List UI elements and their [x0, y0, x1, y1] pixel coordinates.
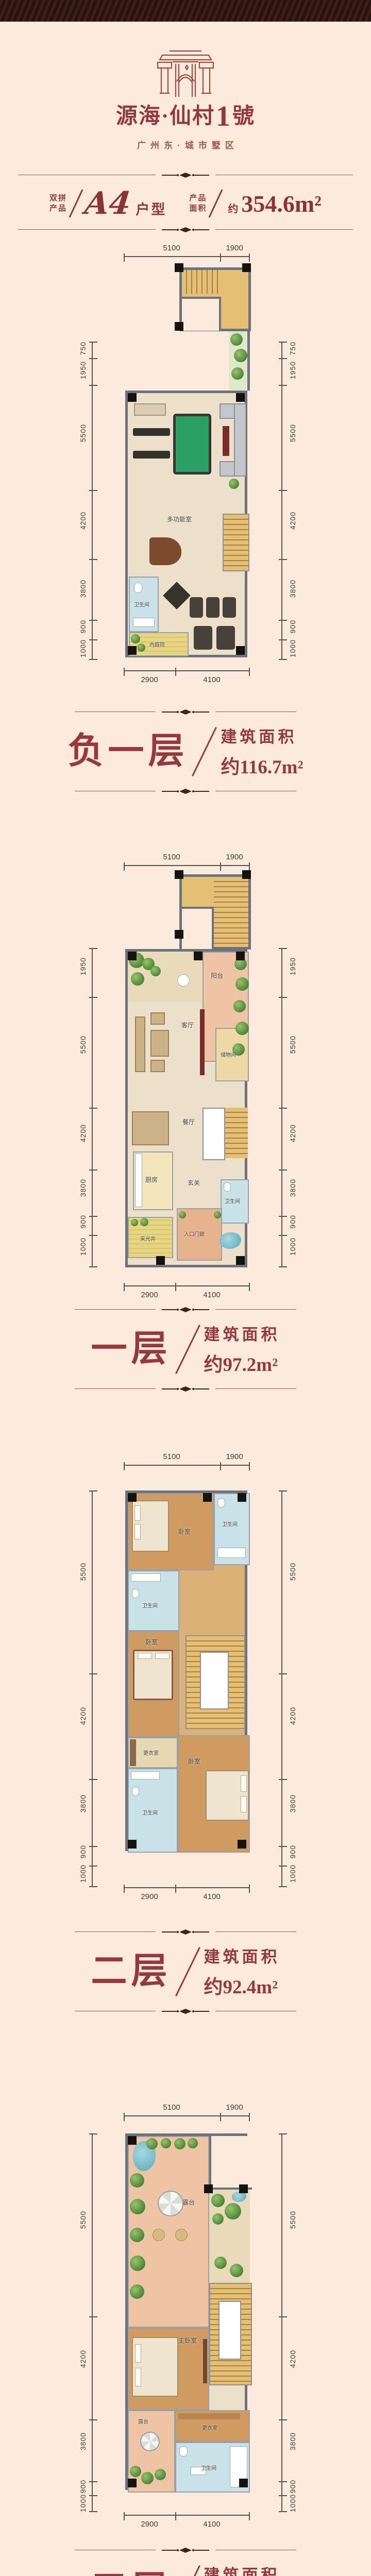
tv-wall [200, 1009, 205, 1075]
unit-model: A4 [83, 188, 132, 219]
staircase [223, 514, 249, 571]
dim-label: 2900 [141, 2520, 158, 2529]
project-subtitle: 广州东·城市墅区 [0, 138, 371, 151]
dim-label: 3800 [289, 580, 297, 598]
room-bedroom: 卧室 [128, 1631, 179, 1737]
dim-label: 5500 [79, 2211, 87, 2229]
first-floor-body: 阳台 客厅 储物间 餐厅 [125, 949, 247, 1267]
plant-icon [230, 333, 243, 346]
floor-caption-basement: 负一层 建筑面积 约116.7m² [0, 724, 371, 779]
dim-label: 4200 [79, 2350, 87, 2368]
room-label: 卫生间 [142, 1808, 158, 1816]
divider [75, 1385, 296, 1393]
dim-label: 1950 [289, 957, 297, 975]
plant-icon [130, 2466, 141, 2477]
plant-icon [150, 966, 161, 976]
bathtub [131, 1573, 161, 1582]
dim-label: 1000 [79, 1865, 87, 1883]
kitchen-counter [135, 1154, 142, 1207]
dim-label: 5500 [289, 1563, 297, 1581]
room-label: 卧室 [188, 1757, 200, 1766]
room-roof-terrace: 露台 [128, 2136, 209, 2328]
room-label: 卫生间 [222, 1520, 238, 1528]
dim-rail-left: 5500 4200 3800 900 1000 [92, 1490, 93, 1887]
dim-rail-top: 5100 1900 [124, 865, 250, 866]
dim-rail-bottom: 2900 4100 [124, 1285, 250, 1286]
divider [18, 226, 353, 233]
plant-icon [130, 2228, 144, 2242]
room-dressing: 更衣室 [128, 1737, 178, 1768]
theater-seat [216, 626, 235, 650]
plant-icon [233, 1000, 246, 1012]
clothes-rack [134, 403, 166, 416]
front-garden [128, 952, 203, 1002]
dim-label: 750 [79, 342, 87, 355]
dim-label: 5100 [163, 1452, 180, 1461]
sofa [234, 403, 246, 477]
dim-label: 4200 [79, 1707, 87, 1725]
room-bathroom: 卫生间 [128, 1570, 179, 1631]
sofa [220, 461, 235, 477]
dim-rail-right: 750 1950 5500 4200 3800 900 1000 [281, 342, 282, 660]
room-label: 露台 [138, 2417, 148, 2425]
slash-divider [69, 189, 83, 218]
plant-icon [131, 634, 140, 643]
dim-rail-right: 5500 4200 3800 900 1000 [281, 2133, 282, 2512]
floor-name: 三层 [91, 2572, 172, 2576]
title-number: 1 [215, 100, 232, 132]
dim-label: 1900 [226, 1452, 243, 1461]
closet [178, 2413, 240, 2419]
room-label: 阳台 [211, 971, 223, 980]
garden-strip [229, 331, 249, 390]
dim-label: 1900 [226, 2103, 243, 2112]
plant-icon [141, 2472, 154, 2484]
armchair [150, 1060, 165, 1072]
plant-icon [214, 2257, 227, 2269]
divider-ornament-icon [156, 788, 215, 794]
bed [132, 1500, 169, 1552]
divider-ornament-icon [156, 709, 215, 715]
plant-icon [229, 479, 239, 489]
dim-rail-bottom: 2900 4100 [124, 670, 250, 671]
dim-label: 5500 [79, 1563, 87, 1581]
side-garden [209, 2190, 250, 2283]
floor-area-caption: 建筑面积 [204, 1944, 280, 1967]
dim-label: 900 [289, 620, 297, 633]
dim-label: 3800 [79, 580, 87, 598]
room-bathroom: 卫生间 [221, 1179, 249, 1224]
floor-name: 一层 [91, 1331, 172, 1367]
dim-label: 1950 [79, 957, 87, 975]
divider-ornament-icon [156, 1929, 215, 1935]
sofa [220, 403, 235, 419]
room-courtyard: 内庭院 [129, 632, 189, 656]
dim-label: 5500 [289, 2211, 297, 2229]
unit-model-suffix: 户型 [136, 198, 166, 218]
toilet [217, 1498, 225, 1507]
dim-rail-right: 5500 4200 3800 900 1000 [281, 1490, 282, 1887]
plant-icon [161, 2138, 171, 2148]
divider [75, 708, 296, 716]
floorplan-basement: 5100 1900 多功能室 [0, 246, 371, 699]
plant-icon [130, 2284, 144, 2299]
staircase [182, 270, 221, 294]
room-bathroom: 卫生间 [214, 1493, 250, 1565]
floor-area-caption: 建筑面积 [204, 1321, 280, 1345]
pool-table [173, 414, 211, 474]
floorplan-second-floor: 5100 1900 卧室 卫生间 卫生间 卧室 更衣 [0, 1439, 371, 1913]
plant-icon [131, 972, 144, 986]
dim-label: 900 [289, 2480, 297, 2493]
dim-label: 3800 [79, 2432, 87, 2450]
floor-area-value: 约92.4m² [204, 1971, 280, 1999]
header: 源海·仙村1號 广州东·城市墅区 [0, 0, 371, 151]
patio-chair [175, 2229, 188, 2241]
dim-rail-top: 5100 1900 [124, 256, 250, 257]
dim-label: 4200 [289, 2350, 297, 2368]
bathtub [133, 618, 155, 627]
toilet [179, 2446, 188, 2456]
room-label: 入口门廊 [184, 1230, 205, 1238]
room-label: 卧室 [145, 1637, 158, 1646]
slash-divider [175, 2565, 200, 2576]
room-label: 卫生间 [201, 2464, 216, 2471]
patio-table [177, 974, 190, 987]
product-category: 双拼 产品 [49, 193, 67, 214]
divider-ornament-icon [156, 1307, 215, 1313]
dining-table [163, 582, 191, 609]
dim-rail-left: 750 1950 5500 4200 3800 900 1000 [92, 342, 93, 660]
plant-icon [235, 1022, 249, 1035]
dim-label: 1000 [79, 1238, 87, 1256]
room-label: 多功能室 [167, 515, 192, 523]
dim-label: 5100 [163, 853, 180, 861]
stair-wing [179, 267, 251, 331]
product-info: 双拼 产品 A4 户型 产品 面积 约 354.6m² [0, 185, 371, 224]
plant-icon [174, 2138, 185, 2149]
dim-rail-bottom: 2900 4100 [124, 2515, 250, 2516]
floor-area-value: 约97.2m² [204, 1349, 280, 1377]
dim-label: 3800 [79, 1794, 87, 1812]
tv-wall [223, 426, 229, 456]
dim-label: 1000 [289, 1238, 297, 1256]
floor-name: 二层 [91, 1954, 172, 1990]
toilet [132, 1787, 139, 1796]
patio-chair [153, 2229, 165, 2241]
staircase [214, 877, 248, 947]
grand-piano [149, 537, 181, 565]
third-floor-body: 露台 [125, 2133, 247, 2490]
dim-label: 900 [79, 1845, 87, 1858]
archway-logo-icon [147, 48, 224, 100]
plant-icon [155, 2469, 166, 2480]
gym-bench [133, 428, 170, 436]
plant-icon [140, 1218, 148, 1226]
theater-seat [206, 597, 220, 618]
dim-label: 5100 [163, 2103, 180, 2112]
dim-label: 1900 [226, 244, 243, 252]
bathtub [217, 1548, 246, 1558]
plant-icon [235, 977, 249, 991]
divider-ornament-icon [156, 227, 215, 233]
dim-label: 4100 [203, 1892, 220, 1901]
dim-label: 4200 [79, 1124, 87, 1142]
floorplan-third-floor: 5100 1900 露台 [0, 2072, 371, 2535]
dim-label: 2900 [141, 1892, 158, 1901]
dim-rail-left: 1950 5500 4200 3800 900 1000 [92, 948, 93, 1267]
staircase [224, 1108, 248, 1158]
dim-rail-top: 5100 1900 [124, 1465, 250, 1466]
armchair [150, 1012, 165, 1025]
divider-ornament-icon [156, 172, 215, 178]
dim-label: 4200 [289, 512, 297, 530]
plant-icon [214, 1211, 221, 1218]
dim-rail-left: 5500 4200 3800 900 1000 [92, 2133, 93, 2512]
dim-label: 5500 [289, 1036, 297, 1054]
dim-label: 3800 [289, 2432, 297, 2450]
dim-label: 900 [79, 2480, 87, 2493]
dim-rail-top: 5100 1900 [124, 2115, 250, 2116]
water-feature [220, 1232, 241, 1249]
plant-icon [130, 2256, 145, 2271]
dim-label: 1900 [226, 853, 243, 861]
room-label: 储物间 [221, 1050, 236, 1058]
plant-icon [230, 2264, 243, 2277]
toilet [132, 1589, 139, 1598]
tv-cabinet [203, 2339, 207, 2383]
basement-body: 多功能室 卫生间 内庭院 [125, 391, 247, 657]
title-text: 源海·仙村 [116, 105, 215, 128]
total-area-value: 354.6m² [241, 192, 322, 216]
dim-label: 900 [79, 620, 87, 633]
plant-icon [231, 367, 244, 380]
divider [75, 2008, 296, 2015]
gym-bench [133, 451, 170, 459]
area-approx-prefix: 约 [228, 200, 238, 215]
room-label: 卧室 [178, 1527, 191, 1536]
room-dressing: 更衣室 [175, 2410, 250, 2442]
bathtub [131, 1771, 160, 1780]
slash-divider [175, 1946, 200, 1996]
closet [130, 1739, 136, 1766]
plant-icon [146, 2138, 158, 2149]
dim-label: 1950 [289, 361, 297, 379]
theater-seat [190, 597, 203, 618]
theater-seat [223, 597, 236, 618]
dim-rail-bottom: 2900 4100 [124, 1887, 250, 1888]
dim-label: 2900 [141, 1291, 158, 1299]
dim-label: 2900 [141, 675, 158, 684]
dim-label: 4200 [289, 1124, 297, 1142]
second-floor-body: 卧室 卫生间 卫生间 卧室 更衣室 卫生间 [125, 1490, 247, 1851]
divider [75, 1928, 296, 1936]
dim-label: 900 [79, 1215, 87, 1228]
room-kitchen: 厨房 [133, 1151, 173, 1210]
dim-label: 3800 [79, 1179, 87, 1197]
slash-divider [192, 726, 217, 776]
room-bedroom: 卧室 [128, 1493, 214, 1570]
dim-label: 3800 [289, 1179, 297, 1197]
dim-label: 4100 [203, 675, 220, 684]
area-caption: 产品 面积 [189, 193, 207, 214]
divider [18, 172, 353, 179]
room-label: 餐厅 [182, 1117, 195, 1126]
poster-page: 源海·仙村1號 广州东·城市墅区 双拼 产品 A4 户型 产品 面积 约 354… [0, 0, 371, 2576]
stair-well [200, 1652, 229, 1709]
dim-label: 1000 [289, 639, 297, 657]
top-banner [0, 0, 371, 22]
dim-label: 4200 [79, 512, 87, 530]
plant-icon [130, 2199, 145, 2214]
room-label: 更衣室 [143, 1749, 159, 1756]
dining-table [132, 1111, 169, 1145]
patio-umbrella [158, 2191, 183, 2216]
stair-wing [179, 874, 251, 950]
plant-icon [234, 349, 247, 362]
slash-divider [175, 1324, 200, 1374]
bed [206, 1770, 249, 1821]
dim-label: 1000 [289, 2494, 297, 2512]
room-label: 露台 [182, 2198, 195, 2207]
project-title: 源海·仙村1號 [0, 101, 371, 133]
floor-area-value: 约116.7m² [221, 751, 303, 779]
slash-divider [209, 189, 223, 218]
dim-label: 4100 [203, 2520, 220, 2529]
room-label: 客厅 [181, 1021, 194, 1029]
room-bedroom: 卧室 [178, 1735, 250, 1853]
room-label: 更衣室 [202, 2424, 217, 2431]
dim-label: 900 [289, 1845, 297, 1858]
bed [132, 2337, 178, 2397]
toilet [224, 1182, 231, 1192]
plant-icon [211, 2194, 225, 2207]
dim-label: 900 [289, 1215, 297, 1228]
floor-caption-first-floor: 一层 建筑面积 约97.2m² [0, 1321, 371, 1377]
title-suffix: 號 [232, 105, 255, 128]
divider-ornament-icon [156, 2547, 215, 2553]
dim-label: 1950 [79, 361, 87, 379]
room-storage: 储物间 [215, 1028, 249, 1081]
dim-label: 5500 [79, 424, 87, 442]
plant-icon [188, 2138, 198, 2148]
room-lightwell: 采光井 [128, 1217, 173, 1258]
floor-area-caption: 建筑面积 [221, 724, 303, 747]
room-label: 内庭院 [149, 640, 165, 648]
divider [75, 2547, 296, 2554]
room-label: 卫生间 [142, 1601, 158, 1609]
dim-label: 750 [289, 342, 297, 355]
divider-ornament-icon [156, 1386, 215, 1392]
dim-rail-right: 1950 5500 4200 3800 900 1000 [281, 948, 282, 1267]
divider-ornament-icon [156, 2008, 215, 2014]
dim-label: 5500 [79, 1036, 87, 1054]
floor-caption-third-floor: 三层 建筑面积 约48.4m² [0, 2562, 371, 2576]
coffee-table [150, 1030, 169, 1057]
tree-icon [225, 2203, 241, 2219]
room-label: 卫生间 [134, 600, 149, 608]
dim-label: 1000 [289, 1865, 297, 1883]
dim-label: 1000 [79, 639, 87, 657]
pond [232, 2192, 246, 2202]
floor-caption-second-floor: 二层 建筑面积 约92.4m² [0, 1944, 371, 1999]
room-label: 卫生间 [225, 1197, 240, 1205]
dim-label: 3800 [289, 1794, 297, 1812]
room-label: 主卧室 [178, 2336, 197, 2345]
plant-icon [137, 643, 145, 652]
plant-icon [131, 1219, 138, 1226]
theater-seat [194, 626, 212, 650]
room-master-bedroom: 主卧室 [128, 2328, 209, 2410]
dim-label: 5500 [289, 424, 297, 442]
room-label: 厨房 [145, 1175, 158, 1184]
dim-label: 4200 [289, 1707, 297, 1725]
divider [75, 788, 296, 795]
dim-label: 1000 [79, 2494, 87, 2512]
room-label: 采光井 [140, 1234, 156, 1242]
sofa [135, 1016, 145, 1072]
dim-label: 5100 [163, 244, 180, 252]
room-label: 玄关 [188, 1178, 200, 1187]
bed [133, 1650, 173, 1700]
dim-label: 4100 [203, 1291, 220, 1299]
floor-name: 负一层 [68, 734, 188, 770]
stair-well [218, 2301, 241, 2360]
room-entry-porch: 入口门廊 [177, 1208, 222, 1261]
stair-landing [203, 1108, 225, 1160]
floor-area-caption: 建筑面积 [204, 2562, 280, 2576]
room-bathroom: 卫生间 [129, 577, 159, 632]
plant-icon [179, 1211, 186, 1218]
divider [75, 1306, 296, 1313]
plant-icon [212, 2213, 224, 2225]
plant-icon [130, 2173, 144, 2188]
toilet [134, 583, 142, 593]
floorplan-first-floor: 5100 1900 阳台 [0, 846, 371, 1300]
patio-umbrella [140, 2432, 160, 2451]
